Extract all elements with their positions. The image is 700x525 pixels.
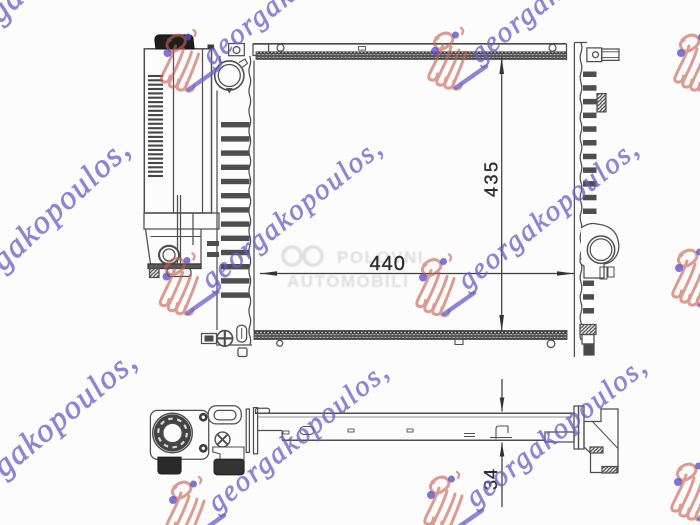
svg-text:435: 435 (482, 159, 502, 197)
svg-text:gakopoulos,: gakopoulos, (0, 0, 135, 30)
svg-text:gakopoulos,: gakopoulos, (0, 131, 138, 278)
svg-text:gakopoulos,: gakopoulos, (0, 343, 145, 484)
svg-text:440: 440 (370, 253, 406, 275)
